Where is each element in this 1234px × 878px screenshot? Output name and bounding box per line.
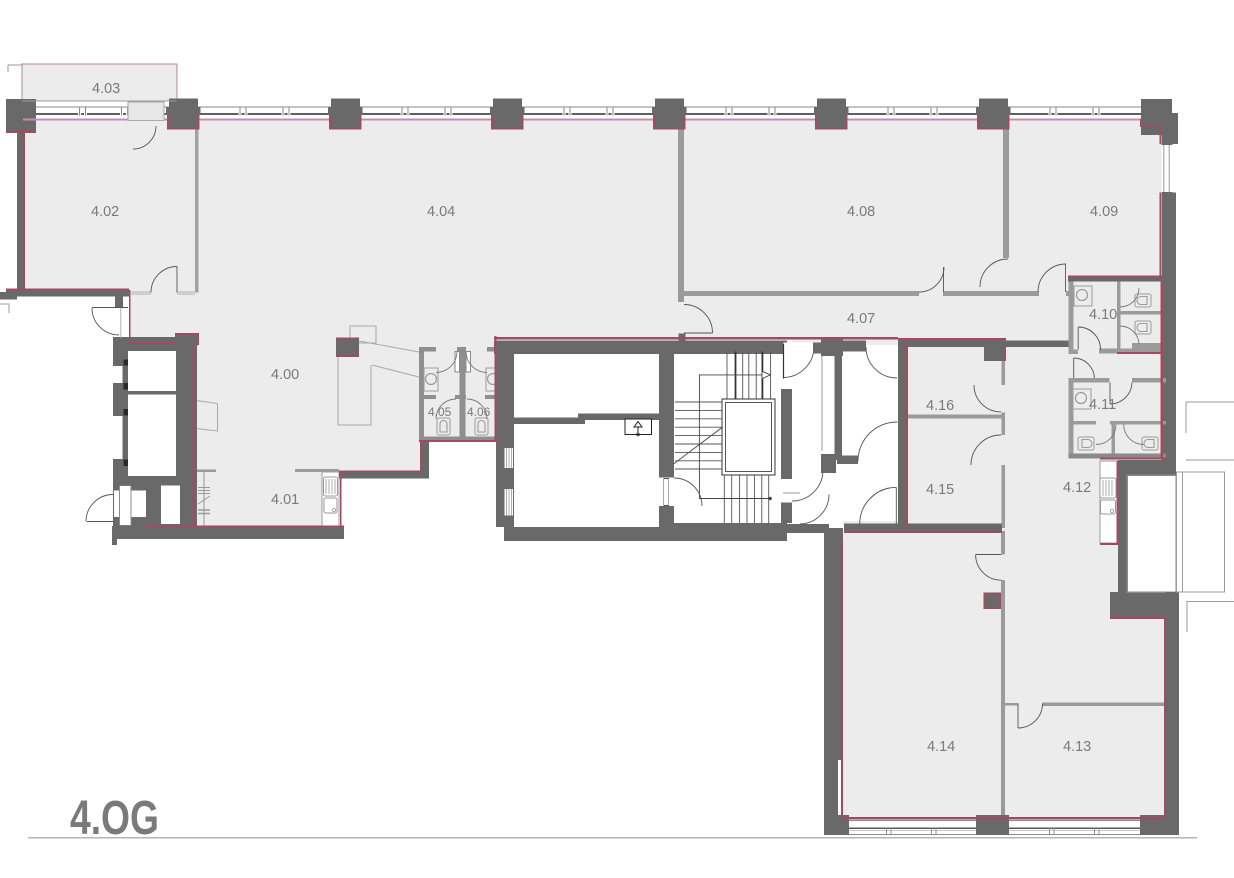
svg-text:4.13: 4.13: [1063, 739, 1091, 755]
svg-text:4.00: 4.00: [271, 367, 299, 383]
svg-text:4.12: 4.12: [1063, 480, 1091, 496]
svg-text:4.05: 4.05: [428, 405, 452, 419]
svg-text:4.14: 4.14: [927, 739, 955, 755]
svg-text:4.15: 4.15: [926, 482, 954, 498]
svg-text:4.04: 4.04: [427, 204, 455, 220]
svg-text:4.16: 4.16: [926, 398, 954, 414]
svg-text:4.OG: 4.OG: [70, 792, 159, 845]
svg-text:4.01: 4.01: [271, 492, 299, 508]
svg-text:4.11: 4.11: [1089, 397, 1116, 413]
svg-text:4.10: 4.10: [1089, 307, 1117, 323]
svg-text:4.03: 4.03: [92, 81, 120, 97]
svg-text:4.02: 4.02: [91, 204, 119, 220]
svg-text:4.08: 4.08: [847, 204, 875, 220]
svg-text:4.07: 4.07: [847, 311, 875, 327]
svg-text:4.06: 4.06: [467, 405, 491, 419]
svg-text:4.09: 4.09: [1090, 204, 1118, 220]
